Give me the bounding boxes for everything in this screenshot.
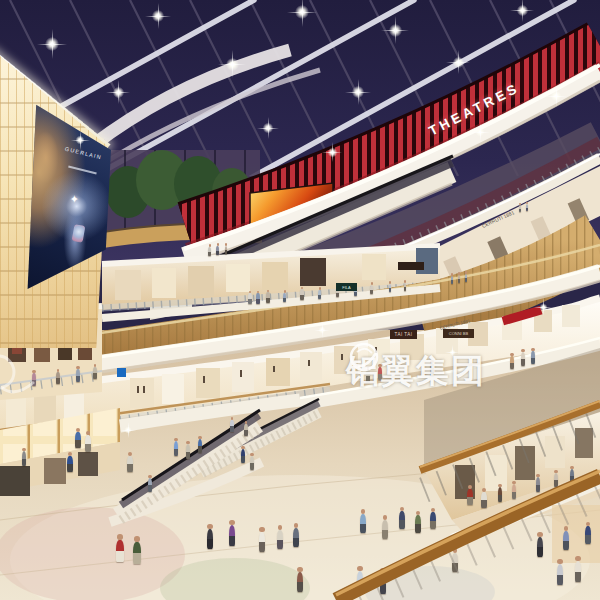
blue-brand-sign — [117, 368, 126, 377]
billboard-tagline-line — [68, 165, 97, 174]
mall-atrium-scene: GUERLAIN ✦ THEATRES FILA TAI TAI CONNI B… — [0, 0, 600, 600]
watermark-logo-icon — [346, 340, 382, 376]
perfume-bottle — [72, 224, 86, 243]
watermark: 铝翼集团 — [346, 340, 556, 402]
sparkle-icon: ✦ — [70, 193, 79, 206]
tai-tai-sign: TAI TAI — [390, 330, 417, 339]
fila-sign: FILA — [336, 283, 357, 291]
billboard-brand-text: GUERLAIN — [61, 145, 106, 162]
